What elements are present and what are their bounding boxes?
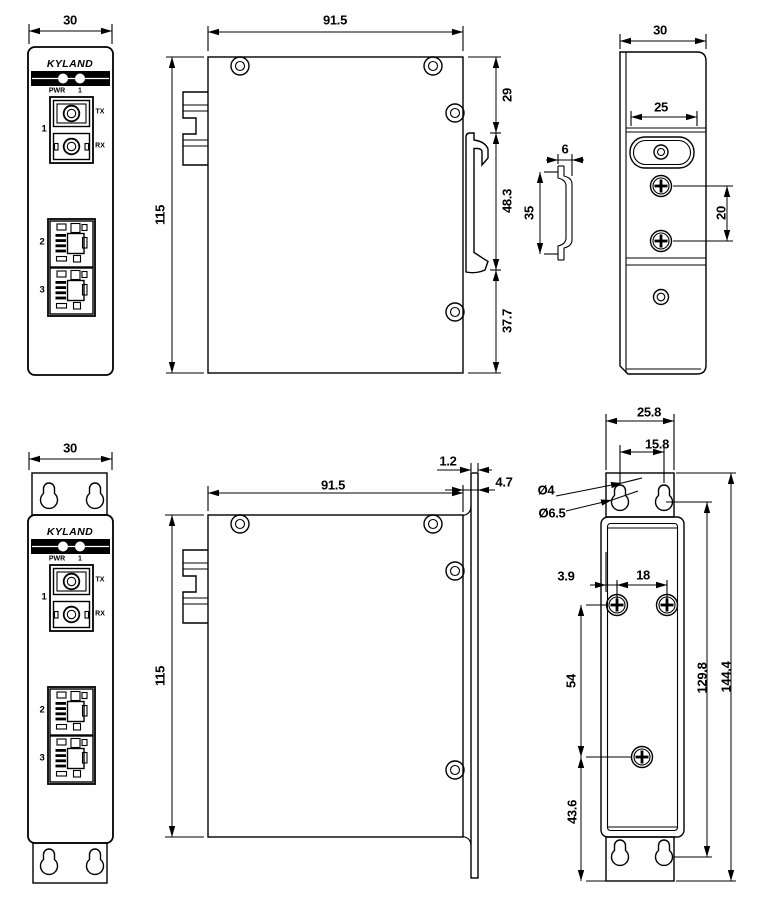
dim-din-clip-span: 48.3: [501, 189, 514, 213]
back-view-din: [620, 34, 733, 374]
pwr-led-label: PWR: [49, 88, 65, 95]
sc-connector-rx: [54, 602, 90, 628]
rj45-port-2: [50, 689, 93, 735]
screw-hole-icon: [231, 57, 464, 321]
rj45-port-2: [50, 221, 93, 267]
port3-label: 3: [40, 753, 45, 763]
side-view-din: [166, 26, 501, 373]
keyhole-slot: [656, 840, 673, 865]
sc-connector-block: [50, 97, 93, 163]
dim-plate-width: 25.8: [637, 406, 661, 419]
front-view-wall: [28, 452, 113, 883]
dim-plate-offset: 4.7: [495, 476, 512, 489]
port3-label: 3: [40, 285, 45, 295]
din-clip: [466, 133, 488, 273]
terminal-block: [183, 92, 208, 165]
port1-led: [75, 74, 85, 84]
dim-screw-edge-offset: 3.9: [557, 570, 574, 583]
front-view-din: [28, 24, 113, 375]
keyhole-slot: [87, 849, 104, 874]
phillips-screw-icon: [632, 747, 653, 768]
port1-led-label: 1: [78, 88, 82, 95]
back-view-wall: [556, 414, 736, 881]
dim-side-din-height: 115: [154, 205, 167, 225]
rj45-port-3: [50, 736, 93, 782]
phillips-screw-icon: [651, 176, 672, 197]
dim-keyhole-v-span: 129.8: [696, 662, 709, 693]
dim-side-wall-depth: 91.5: [321, 479, 345, 492]
brand-logo: KYLAND: [47, 59, 93, 70]
dim-screw-h-spacing: 18: [636, 569, 650, 582]
rj45-block: [48, 219, 95, 316]
rj45-block: [48, 687, 95, 784]
dim-bottom-offset: 43.6: [566, 800, 579, 824]
dim-din-bottom-offset: 37.7: [501, 309, 514, 333]
dim-keyhole-small-dia: Ø4: [538, 484, 555, 497]
brand-logo: KYLAND: [47, 527, 93, 538]
dim-plate-thickness: 1.2: [439, 455, 456, 468]
port2-label: 2: [40, 237, 45, 247]
dim-keyhole-large-dia: Ø6.5: [539, 507, 566, 520]
dim-front-din-width: 30: [63, 14, 77, 27]
wall-plate-edge: [471, 473, 478, 878]
side-view-wall: [165, 463, 495, 878]
slot-screw-icon: [654, 145, 668, 159]
leader-line: [566, 500, 612, 511]
port1-led: [75, 542, 85, 552]
rx-label: RX: [95, 611, 105, 618]
screw-hole-icon: [231, 515, 464, 779]
sc-connector-rx: [54, 134, 90, 160]
device-body-side: [208, 57, 463, 373]
dim-rail-depth: 6: [562, 143, 569, 156]
dim-side-wall-height: 115: [154, 666, 167, 686]
din-rail-profile: [540, 154, 584, 260]
fiber-port-label: 1: [42, 124, 47, 134]
dim-screw-v-spacing: 54: [565, 674, 578, 688]
phillips-screw-icon: [651, 231, 672, 252]
keyhole-slot: [87, 483, 104, 508]
keyhole-slot: [612, 840, 629, 865]
dim-keyhole-spacing: 15.8: [645, 438, 669, 451]
device-body-back: [601, 517, 684, 837]
port2-label: 2: [40, 705, 45, 715]
sc-connector-block: [50, 565, 93, 631]
dim-back-din-width: 30: [653, 24, 667, 37]
dim-bracket-screw-spacing: 20: [715, 206, 728, 220]
keyhole-slot: [41, 483, 58, 508]
dim-bracket-width: 25: [654, 101, 668, 114]
terminal-block: [183, 550, 208, 623]
dim-front-wall-width: 30: [63, 442, 77, 455]
fiber-port-label: 1: [42, 592, 47, 602]
device-body-side: [208, 515, 463, 837]
keyhole-slot: [656, 485, 673, 510]
din-bracket: [626, 128, 706, 265]
dim-side-din-depth: 91.5: [323, 14, 347, 27]
power-led: [58, 542, 68, 552]
pwr-led-label: PWR: [49, 556, 65, 563]
dim-din-top-offset: 29: [501, 88, 514, 102]
power-led: [58, 74, 68, 84]
keyhole-slot: [41, 849, 58, 874]
rj45-port-3: [50, 268, 93, 314]
tx-label: TX: [96, 577, 105, 584]
dim-plate-height: 144.4: [720, 661, 733, 692]
drawing-linework: [0, 0, 776, 916]
rx-label: RX: [95, 143, 105, 150]
port1-led-label: 1: [78, 556, 82, 563]
screw-hole-icon: [654, 290, 669, 305]
dimensional-drawing-sheet: 30 91.5 115 29 48.3 37.7 6 35 30 25 20 3…: [0, 0, 776, 916]
dim-rail-height: 35: [523, 206, 536, 220]
leader-line: [556, 483, 622, 496]
tx-label: TX: [96, 109, 105, 116]
